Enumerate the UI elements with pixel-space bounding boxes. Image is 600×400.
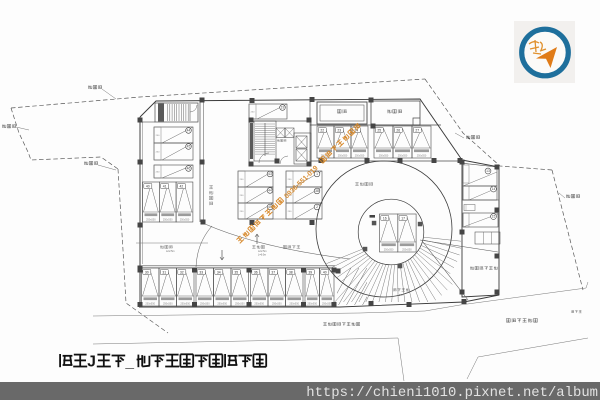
- svg-text:13: 13: [486, 169, 490, 173]
- svg-text:41: 41: [163, 185, 167, 189]
- svg-text:250x550: 250x550: [163, 218, 173, 221]
- svg-text:250x550: 250x550: [163, 302, 173, 305]
- svg-text:250x550: 250x550: [272, 302, 282, 305]
- svg-text:16: 16: [383, 217, 387, 221]
- svg-text:31: 31: [162, 271, 166, 275]
- svg-text:250x550: 250x550: [417, 154, 427, 157]
- svg-text:250x550: 250x550: [322, 302, 332, 305]
- svg-text:250x550: 250x550: [235, 302, 245, 305]
- svg-text:w=2.5m: w=2.5m: [166, 250, 174, 253]
- svg-text:19: 19: [281, 106, 285, 110]
- svg-text:250x550: 250x550: [146, 218, 156, 221]
- svg-text:27: 27: [415, 129, 419, 133]
- svg-text:32: 32: [180, 271, 184, 275]
- svg-text:250x550: 250x550: [217, 302, 227, 305]
- svg-text:250x550: 250x550: [200, 302, 210, 305]
- svg-text:44: 44: [268, 189, 272, 193]
- svg-text:250x550: 250x550: [355, 154, 365, 157]
- svg-text:37: 37: [271, 271, 275, 275]
- svg-text:25: 25: [377, 129, 381, 133]
- svg-text:L=6.0m: L=6.0m: [258, 254, 266, 257]
- svg-text:250x550: 250x550: [338, 154, 348, 157]
- svg-text:250x550: 250x550: [254, 302, 264, 305]
- svg-text:35: 35: [234, 271, 238, 275]
- svg-text:46: 46: [187, 167, 191, 171]
- svg-text:15: 15: [492, 215, 496, 219]
- svg-text:40: 40: [146, 185, 150, 189]
- svg-text:43: 43: [268, 172, 272, 176]
- svg-text:23: 23: [337, 129, 341, 133]
- svg-text:26: 26: [396, 129, 400, 133]
- svg-text:38: 38: [315, 189, 319, 193]
- svg-text:30: 30: [145, 271, 149, 275]
- svg-text:250x550: 250x550: [289, 302, 299, 305]
- svg-text:250x550: 250x550: [180, 218, 190, 221]
- svg-text:38: 38: [289, 271, 293, 275]
- svg-text:https://chieni1010.pixnet.net/: https://chieni1010.pixnet.net/album: [306, 385, 598, 400]
- svg-text:250x550: 250x550: [398, 154, 408, 157]
- svg-text:250x550: 250x550: [307, 302, 317, 305]
- svg-text:250x550: 250x550: [180, 302, 190, 305]
- svg-text:J: J: [87, 354, 96, 371]
- svg-text:17: 17: [401, 217, 405, 221]
- svg-text:250x550: 250x550: [402, 248, 412, 251]
- svg-text:36: 36: [254, 271, 258, 275]
- svg-text:22: 22: [320, 129, 324, 133]
- svg-text:44: 44: [187, 129, 191, 133]
- svg-text:40: 40: [323, 271, 327, 275]
- svg-text:250x550: 250x550: [145, 302, 155, 305]
- svg-text:14: 14: [492, 187, 496, 191]
- svg-text:33: 33: [199, 271, 203, 275]
- svg-text:250x550: 250x550: [384, 248, 394, 251]
- svg-text:_: _: [124, 354, 134, 371]
- svg-text:45: 45: [187, 145, 191, 149]
- svg-text:2: 2: [316, 205, 318, 209]
- svg-text:39: 39: [308, 271, 312, 275]
- svg-text:250x550: 250x550: [379, 154, 389, 157]
- svg-text:42: 42: [180, 185, 184, 189]
- svg-text:34: 34: [217, 271, 221, 275]
